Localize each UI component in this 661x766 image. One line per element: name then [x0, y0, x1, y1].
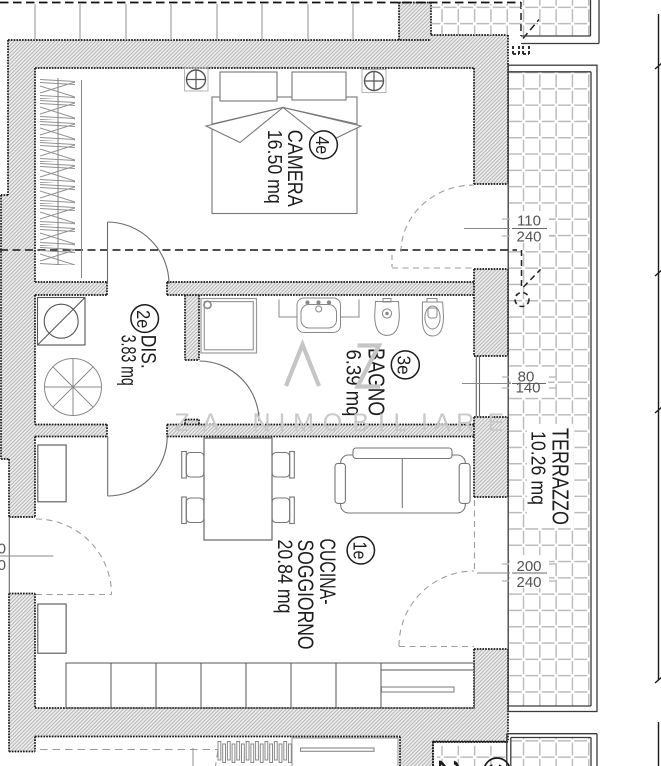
- svg-text:A: A: [434, 409, 451, 437]
- svg-text:I: I: [421, 409, 428, 437]
- svg-text:2e: 2e: [133, 310, 153, 328]
- svg-text:4e: 4e: [312, 136, 332, 154]
- svg-text:A: A: [202, 409, 219, 437]
- svg-text:Z: Z: [174, 409, 189, 437]
- svg-text:240: 240: [516, 574, 541, 591]
- svg-text:200: 200: [516, 558, 541, 575]
- svg-text:E: E: [488, 409, 505, 437]
- svg-text:6.39 mq: 6.39 mq: [342, 350, 366, 417]
- svg-text:3e: 3e: [394, 356, 414, 375]
- svg-text:I: I: [378, 409, 385, 437]
- svg-text:2F: 2F: [432, 759, 464, 766]
- svg-text:I: I: [279, 409, 286, 437]
- svg-text:10.26 mq: 10.26 mq: [527, 431, 550, 505]
- svg-text:BAGNO: BAGNO: [364, 348, 390, 416]
- svg-text:0: 0: [0, 557, 6, 574]
- svg-text:110: 110: [517, 213, 541, 230]
- svg-text:B: B: [352, 409, 369, 437]
- svg-text:1e: 1e: [349, 542, 369, 560]
- svg-text:20.84 mq: 20.84 mq: [273, 540, 296, 614]
- svg-text:3.83 mq: 3.83 mq: [116, 335, 139, 386]
- svg-text:M: M: [293, 409, 314, 437]
- svg-text:240: 240: [516, 229, 541, 246]
- svg-text:R: R: [456, 409, 474, 437]
- svg-text:L: L: [394, 409, 408, 437]
- svg-text:TERRAZZO: TERRAZZO: [548, 428, 574, 525]
- svg-text:O: O: [323, 409, 342, 437]
- svg-text:16.50 mq: 16.50 mq: [263, 130, 285, 204]
- svg-text:140: 140: [515, 380, 540, 397]
- svg-text:N: N: [252, 409, 270, 437]
- svg-text:CAMERA: CAMERA: [283, 130, 306, 207]
- svg-text:0: 0: [0, 541, 6, 558]
